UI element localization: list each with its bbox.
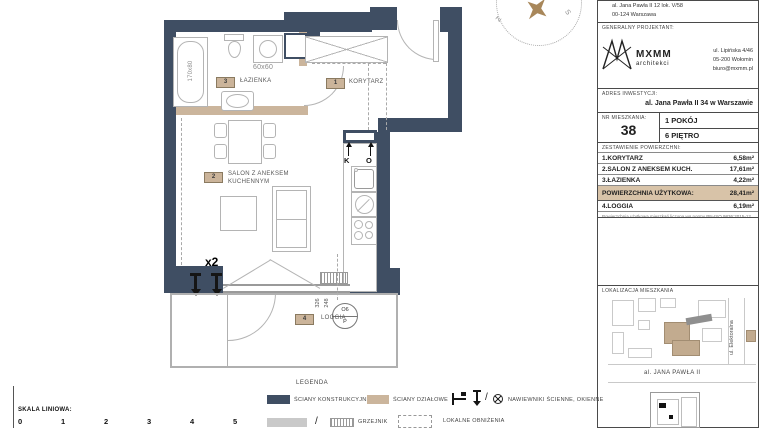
designer-address-line3: biuro@mxmm.pl <box>713 65 753 74</box>
legend-radiator-swatch-b <box>330 418 354 427</box>
legend-radiator-label: GRZEJNIK <box>358 419 388 425</box>
chair <box>263 144 276 159</box>
areas-label: ZESTAWIENIE POWIERZCHNI: <box>598 143 758 153</box>
legend-window-vent-icon <box>472 390 482 406</box>
panel-designer: GENERALNY PROJEKTANT: MXMM architekci ul… <box>597 22 759 89</box>
area-name: 4.LOGGIA <box>602 203 633 210</box>
map-block <box>702 328 722 342</box>
brand-name: MXMM <box>636 49 672 60</box>
designer-address-line2: 05-200 Wołomin <box>713 56 753 65</box>
legend-structural-swatch <box>267 395 290 404</box>
shaft-box <box>284 33 307 59</box>
riser-arrow-stem <box>348 147 349 156</box>
scale-bar-label: SKALA LINIOWA: <box>18 407 72 413</box>
entry-door-leaf <box>433 20 439 62</box>
designer-label: GENERALNY PROJEKTANT: <box>598 23 758 31</box>
map-street-horizontal-name: al. JANA PAWŁA II <box>644 370 701 376</box>
scale-tick: 5 <box>233 417 237 426</box>
area-row: 1.KORYTARZ 6,58m² <box>598 153 758 164</box>
panel-spacer <box>597 217 759 286</box>
map-block <box>638 320 650 330</box>
dining-table <box>228 120 262 164</box>
room-label-livingroom: SALON Z ANEKSEM KUCHENNYM <box>228 171 300 186</box>
legend-radiator-swatch-a <box>267 418 307 427</box>
scale-tick: 0 <box>18 417 22 426</box>
scale-tick: 1 <box>61 417 65 426</box>
apartment-floor: 6 PIĘTRO <box>660 129 758 143</box>
room-label-corridor: KORYTARZ <box>349 79 384 87</box>
vent-stem <box>194 276 197 289</box>
investment-label: ADRES INWESTYCJI: <box>598 89 758 97</box>
footprint-detail-dot <box>669 415 673 419</box>
room-badge-livingroom: 2 <box>204 172 223 183</box>
ceiling-drop-line <box>386 63 387 130</box>
vent-part <box>476 392 478 401</box>
apartment-info-cell: 1 POKÓJ 6 PIĘTRO <box>660 113 758 142</box>
scale-tick: 2 <box>104 417 108 426</box>
apartment-rooms: 1 POKÓJ <box>660 113 758 129</box>
bathtub-dimension: 170x80 <box>188 53 194 89</box>
legend-vents-label: NAWIEWNIKI ŚCIENNE, OKIENNE <box>508 397 604 403</box>
ceiling-drop-line <box>368 63 369 130</box>
legend-valve-vent-icon <box>493 394 503 404</box>
vent-stem <box>215 276 218 289</box>
wall-structural-segment <box>284 12 372 32</box>
panel-location: LOKALIZACJA MIESZKANIA ul. Elektoralna a… <box>597 285 759 428</box>
area-total-row: POWIERZCHNIA UŻYTKOWA: 28,41m² <box>598 186 758 201</box>
floorplan-sheet: Z S 170x80 60x60 3 ŁAZIENKA 1 KORYTARZ 2… <box>0 0 760 428</box>
map-dark-building <box>686 314 713 325</box>
brand-sub: architekci <box>636 61 669 67</box>
map-building <box>746 330 756 342</box>
investor-address-line2: 00-124 Warszawa <box>612 12 656 18</box>
wall-structural-segment <box>370 7 397 30</box>
legend-ceiling-label: LOKALNE OBNIŻENIA <box>443 418 505 424</box>
legend-structural-label: ŚCIANY KONSTRUKCYJNE <box>294 397 371 403</box>
loggia-divider <box>227 293 228 368</box>
kitchen-faucet <box>354 168 358 172</box>
room-badge-corridor: 1 <box>326 78 345 89</box>
area-total-name: POWIERZCHNIA UŻYTKOWA: <box>602 190 694 197</box>
scale-tick: 4 <box>190 417 194 426</box>
area-total-value: 28,41m² <box>730 190 754 197</box>
legend-partition-swatch <box>367 395 389 404</box>
burner-circle <box>365 231 373 239</box>
area-value: 6,58m² <box>733 155 754 162</box>
sofa-cushion-divider <box>276 219 307 220</box>
chair <box>214 144 227 159</box>
loggia-window <box>223 284 350 293</box>
footprint-apartment-marker <box>659 403 666 408</box>
map-street-line <box>608 382 756 383</box>
vent-part <box>461 392 466 396</box>
map-block <box>628 348 652 358</box>
riser-arrow-stem <box>370 147 371 156</box>
ceiling-drop-line <box>312 63 386 64</box>
panel-apartment: NR MIESZKANIA: 38 1 POKÓJ 6 PIĘTRO <box>597 112 759 143</box>
wall-structural-segment <box>440 7 462 32</box>
apartment-number-cell: NR MIESZKANIA: 38 <box>598 113 660 142</box>
legend-slash2: / <box>315 416 318 427</box>
wall-structural-segment <box>378 118 462 132</box>
washer-dimension: 60x60 <box>253 64 273 71</box>
map-block <box>660 298 676 308</box>
area-row: 2.SALON Z ANEKSEM KUCH. 17,61m² <box>598 164 758 175</box>
mxmm-logo-icon <box>602 37 632 76</box>
area-name: 2.SALON Z ANEKSEM KUCH. <box>602 166 692 173</box>
room-label-bathroom: ŁAZIENKA <box>240 78 271 86</box>
map-street-line <box>744 298 745 364</box>
area-name: 3.ŁAZIENKA <box>602 177 640 184</box>
map-street-line <box>608 364 756 365</box>
legend-title: LEGENDA <box>296 380 328 386</box>
toilet-tank <box>224 34 244 41</box>
toilet-bowl <box>228 41 241 58</box>
apartment-number-label: NR MIESZKANIA: <box>598 113 659 121</box>
investor-address-line1: al. Jana Pawła II 12 lok. V/58 <box>612 3 683 9</box>
entry-door-arc <box>397 20 437 60</box>
scale-tick: 3 <box>147 417 151 426</box>
map-block <box>612 300 634 326</box>
chair <box>263 123 276 138</box>
vent-part <box>454 398 466 400</box>
riser-label-k: K <box>344 156 349 165</box>
burner-circle <box>365 221 373 229</box>
designer-address-line1: ul. Lipińska 4/46 <box>713 47 753 56</box>
wall-structural-segment <box>164 20 284 32</box>
area-value: 17,61m² <box>730 166 754 173</box>
burner-circle <box>354 220 363 229</box>
room-label-loggia: LOGGIA <box>321 315 346 323</box>
investment-value: al. Jana Pawła II 34 w Warszawie <box>645 100 753 107</box>
ceiling-drop-line <box>181 118 182 265</box>
map-subject-building <box>672 340 700 356</box>
burner-circle <box>354 231 363 240</box>
footprint-detail <box>681 397 697 427</box>
vents-count-label: x2 <box>205 255 218 269</box>
area-name: 1.KORYTARZ <box>602 155 643 162</box>
legend-ceiling-swatch <box>398 415 432 428</box>
area-value: 4,22m² <box>733 177 754 184</box>
legend-wall-vent-icon <box>452 392 468 406</box>
room-badge-bathroom: 3 <box>216 77 235 88</box>
legend-partition-label: ŚCIANY DZIAŁOWE <box>393 397 448 403</box>
map-street-vertical-name: ul. Elektoralna <box>729 299 735 355</box>
area-loggia-row: 4.LOGGIA 6,19m² <box>598 201 758 212</box>
wall-structural-segment <box>448 30 462 132</box>
riser-label-o: O <box>366 156 372 165</box>
kitchen-sink-basin <box>354 169 374 189</box>
location-label: LOKALIZACJA MIESZKANIA <box>598 286 758 294</box>
loggia-outline <box>170 293 398 368</box>
washer-drum <box>259 40 277 58</box>
sheet-frame-line <box>13 386 14 428</box>
designer-address: ul. Lipińska 4/46 05-200 Wołomin biuro@m… <box>713 47 753 73</box>
riser-arrow-up <box>346 142 352 147</box>
panel-areas: ZESTAWIENIE POWIERZCHNI: 1.KORYTARZ 6,58… <box>597 142 759 218</box>
map-block <box>612 332 624 354</box>
panel-investment-address: ADRES INWESTYCJI: al. Jana Pawła II 34 w… <box>597 88 759 113</box>
coffee-table <box>220 196 257 231</box>
vent-part <box>473 401 481 406</box>
wardrobe <box>305 36 388 63</box>
area-row: 3.ŁAZIENKA 4,22m² <box>598 175 758 186</box>
map-block <box>638 298 656 312</box>
building-footprint <box>650 392 700 428</box>
washbasin-bowl <box>226 94 249 108</box>
riser-arrow-up <box>368 142 374 147</box>
legend-slash: / <box>485 392 488 403</box>
room-badge-loggia: 4 <box>295 314 314 325</box>
radiator <box>320 272 348 284</box>
area-value: 6,19m² <box>733 203 754 210</box>
panel-investor: al. Jana Pawła II 12 lok. V/58 00-124 Wa… <box>597 0 759 23</box>
chair <box>214 123 227 138</box>
apartment-number: 38 <box>598 122 659 138</box>
